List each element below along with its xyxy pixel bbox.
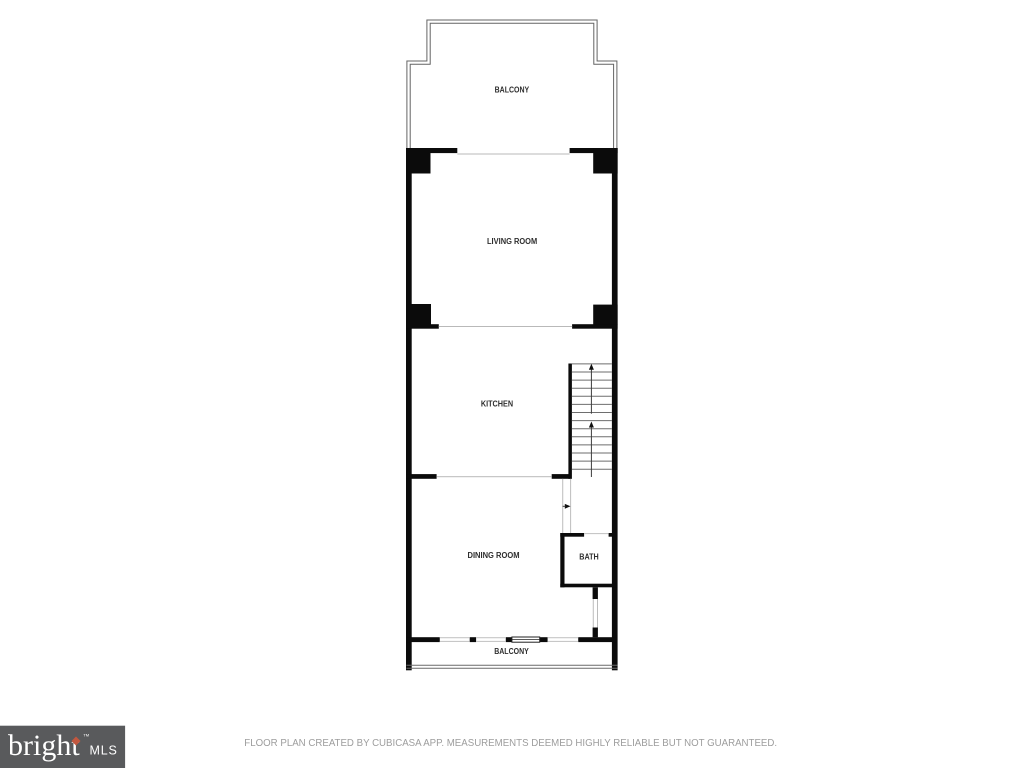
svg-text:bright: bright bbox=[8, 729, 80, 762]
svg-text:BATH: BATH bbox=[579, 552, 599, 562]
svg-text:DINING ROOM: DINING ROOM bbox=[468, 550, 520, 560]
svg-text:KITCHEN: KITCHEN bbox=[481, 398, 513, 408]
svg-text:MLS: MLS bbox=[90, 744, 118, 758]
svg-text:LIVING ROOM: LIVING ROOM bbox=[487, 236, 537, 246]
svg-text:™: ™ bbox=[83, 734, 90, 741]
svg-text:BALCONY: BALCONY bbox=[494, 646, 529, 656]
svg-text:FLOOR PLAN CREATED BY CUBICASA: FLOOR PLAN CREATED BY CUBICASA APP. MEAS… bbox=[244, 738, 777, 749]
svg-text:BALCONY: BALCONY bbox=[495, 85, 530, 95]
